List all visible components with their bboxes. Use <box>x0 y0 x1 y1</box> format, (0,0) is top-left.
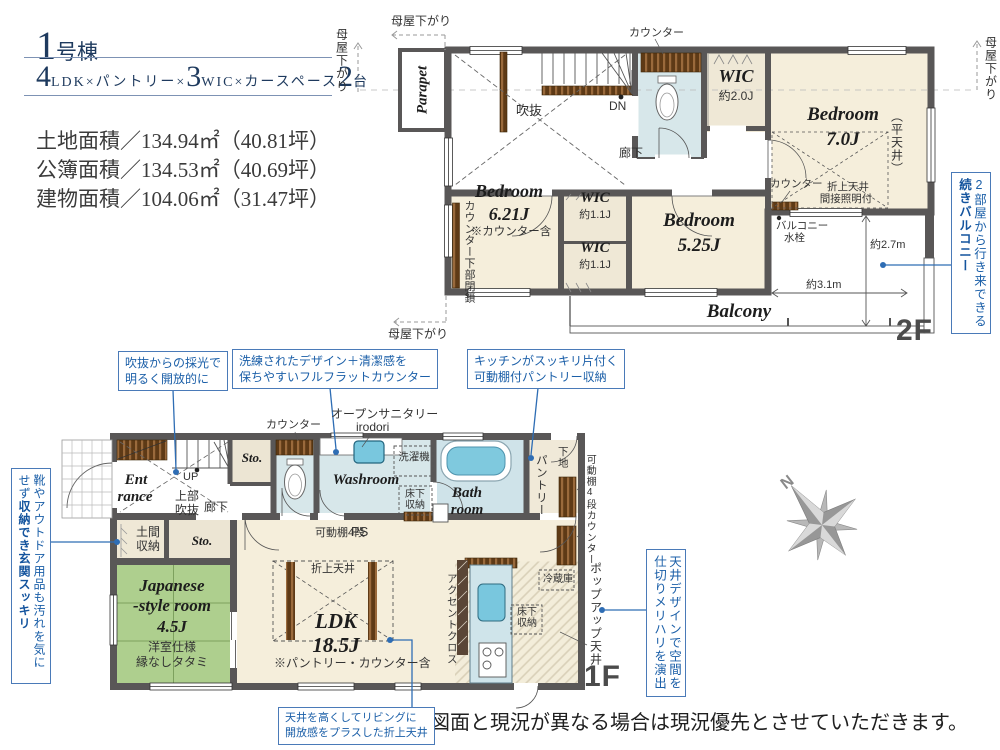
header-rule-top <box>24 57 332 58</box>
ps-label: PS <box>351 525 368 540</box>
japanese-l2: -style room <box>133 596 211 615</box>
wic2-name: WIC <box>718 66 753 86</box>
bath-l1: Bath <box>452 485 482 502</box>
toilet-counter-label-2f: カウンター <box>629 27 684 39</box>
roof-slope-label-right: 母屋下がり <box>983 36 996 101</box>
washroom-label: Washroom <box>333 472 399 489</box>
accent-label: アクセントクロス <box>445 573 457 665</box>
dn-label: DN <box>609 100 626 113</box>
callout-entrance-bold: 収納でき玄関スッキリ <box>17 500 31 630</box>
bedroom621-note: ※カウンター含 <box>471 226 552 239</box>
callout-balcony: 2部屋から行き来できる続きバルコニー <box>951 172 991 334</box>
balcony-name: Balcony <box>707 301 771 322</box>
bedroom7-name: Bedroom <box>807 104 879 125</box>
doma-l2: 収納 <box>136 540 160 553</box>
doma-l1: 土間 <box>136 526 160 539</box>
toilet-counter-1f <box>276 440 313 455</box>
ldk-size: 18.5J <box>312 634 359 658</box>
kitchen-counter-nook <box>557 526 576 565</box>
ps-box <box>433 504 448 522</box>
toilet-fixture-1f <box>285 459 306 499</box>
callout-balcony-bold: 続きバルコニー <box>957 178 971 273</box>
callout-void-l2: 明るく開放的に <box>125 371 221 387</box>
callout-counter: 洗練されたデザイン＋清潔感を 保ちやすいフルフラットカウンター <box>232 349 438 389</box>
area-building: 建物面積／104.06㎡（31.47坪） <box>36 188 330 212</box>
balcony-dim-vertical: 約2.7m <box>870 239 905 251</box>
bedroom621-counter-note: カウンター下部閉鎖 <box>462 200 475 264</box>
balcony-dim-horizontal: 約3.1m <box>806 279 841 291</box>
header-rule-bottom <box>24 95 332 96</box>
callout-pantry: キッチンがスッキリ片付く 可動棚付パントリー収納 <box>467 349 625 389</box>
floor-storage-l2: 収納 <box>405 500 425 511</box>
japanese-l1: Japanese <box>139 576 204 595</box>
area-kobo: 公簿面積／134.53㎡（40.69坪） <box>36 159 330 183</box>
wic-b-size: 約1.1J <box>579 259 611 271</box>
japanese-l5: 縁なしタタミ <box>136 656 208 669</box>
floorplan-page: 1号棟 4LDK×パントリー×3WIC×カースペース2台 土地面積／134.94… <box>0 0 1000 750</box>
japanese-l4: 洋室仕様 <box>148 641 196 654</box>
japanese-l3: 4.5J <box>157 617 187 636</box>
bedroom7-counter <box>772 202 798 210</box>
hallway-label-2f: 廊下 <box>619 147 643 160</box>
shelf-right-label: 可動棚4段 <box>584 454 595 510</box>
spec-text-2: WIC×カースペース <box>201 75 338 90</box>
toilet-counter-2f <box>641 53 701 72</box>
wic-a-size: 約1.1J <box>579 209 611 221</box>
callout-pantry-l2: 可動棚付パントリー収納 <box>474 369 618 385</box>
roof-slope-label-bottom: 母屋下がり <box>388 328 448 341</box>
kitchen-sink <box>478 584 505 621</box>
void-upper-l2: 吹抜 <box>175 504 199 517</box>
callout-counter-l2: 保ちやすいフルフラットカウンター <box>239 369 431 385</box>
compass-icon <box>758 460 878 581</box>
shitaji-label: 下地 <box>556 446 568 469</box>
counter-lower-closed <box>453 203 460 288</box>
entrance-l1: Ent <box>125 472 148 489</box>
porch <box>62 440 112 518</box>
bedroom525-name: Bedroom <box>663 210 735 231</box>
toilet-counter-label-1f: カウンター <box>266 419 321 431</box>
bedroom7-ceiling-l2: 間接照明付 <box>820 194 873 206</box>
bedroom7-size: 7.0J <box>826 129 859 150</box>
balcony-water-l1: バルコニー <box>776 221 828 233</box>
bedroom621-name: Bedroom <box>475 181 543 201</box>
spec-num-2: 3 <box>186 60 201 93</box>
popup-ceiling-label: ポップアップ天井 <box>588 562 601 666</box>
callout-ceiling-design: 天井デザインで空間を仕切りメリハリを演出 <box>646 549 686 697</box>
ldk-name: LDK <box>315 610 357 634</box>
wic2-size: 約2.0J <box>719 90 754 103</box>
callout-void: 吹抜からの採光で 明るく開放的に <box>118 351 228 391</box>
spec-num-1: 4 <box>36 60 51 93</box>
callout-balcony-text: 2部屋から行き来できる <box>972 178 986 328</box>
void-upper-l1: 上部 <box>175 490 199 503</box>
oriage-label: 折上天井 <box>311 563 355 575</box>
fridge-label: 冷蔵庫 <box>543 574 573 585</box>
spec-line: 4LDK×パントリー×3WIC×カースペース2台 <box>36 60 367 94</box>
up-label: UP <box>183 471 198 483</box>
callout-pantry-l1: キッチンがスッキリ片付く <box>474 353 618 369</box>
sink <box>354 441 384 463</box>
floor1-label: 1F <box>584 660 621 694</box>
kitchen-storage-l2: 収納 <box>517 618 537 629</box>
callout-counter-l1: 洗練されたデザイン＋清潔感を <box>239 353 431 369</box>
spec-text-3: 台 <box>353 75 367 90</box>
ldk-note: ※パントリー・カウンター含 <box>274 657 431 670</box>
callout-entrance: 靴やアウトドア用品も汚れを気にせず収納でき玄関スッキリ <box>11 468 51 684</box>
open-sanitary-l2: irodori <box>356 421 389 434</box>
kitchen-storage-l1: 床下 <box>517 607 537 618</box>
stove <box>479 643 506 677</box>
parapet-label: Parapet <box>415 66 432 114</box>
bedroom525-size: 5.25J <box>678 235 721 256</box>
disclaimer: 図面と現況が異なる場合は現況優先とさせていただきます。 <box>430 712 968 734</box>
callout-void-l1: 吹抜からの採光で <box>125 355 221 371</box>
void-label-2f: 吹抜 <box>516 104 542 119</box>
callout-living-l2: 開放感をプラスした折上天井 <box>285 726 428 741</box>
bedroom7-counter-label: カウンター <box>770 179 823 191</box>
washer-label: 洗濯機 <box>398 452 430 464</box>
hallway-label-1f: 廊下 <box>204 501 228 514</box>
bedroom7-ceiling-l1: 折上天井 <box>827 182 869 194</box>
shelf-ps-wood <box>404 512 432 521</box>
wic-a-name: WIC <box>580 190 609 207</box>
pantry-label: パントリー <box>534 454 547 517</box>
storage-upper-label: Sto. <box>242 451 263 466</box>
pantry-shelf <box>559 477 576 517</box>
callout-living-l1: 天井を高くしてリビングに <box>285 711 428 726</box>
roof-slope-label-top: 母屋下がり <box>391 15 451 28</box>
balcony-water-l2: 水栓 <box>784 233 805 245</box>
spec-text-1: LDK×パントリー× <box>51 75 186 90</box>
storage-lower-label: Sto. <box>192 534 213 549</box>
bathtub <box>441 441 511 481</box>
entrance-l2: rance <box>118 489 153 506</box>
floor2-label: 2F <box>896 314 933 348</box>
area-land: 土地面積／134.94㎡（40.81坪） <box>36 130 330 154</box>
floor-storage-l1: 床下 <box>405 489 425 500</box>
bedroom621-size: 6.21J <box>489 204 530 224</box>
wic-b-name: WIC <box>580 240 609 257</box>
callout-living-ceiling: 天井を高くしてリビングに 開放感をプラスした折上天井 <box>278 707 435 745</box>
toilet-fixture-2f <box>656 76 678 120</box>
bath-l2: room <box>451 502 484 519</box>
counter-right-label: カウンター <box>584 510 595 565</box>
bedroom7-flat-ceiling: （平天井） <box>889 110 902 175</box>
roof-slope-label-left: 母屋下がり <box>334 28 347 93</box>
